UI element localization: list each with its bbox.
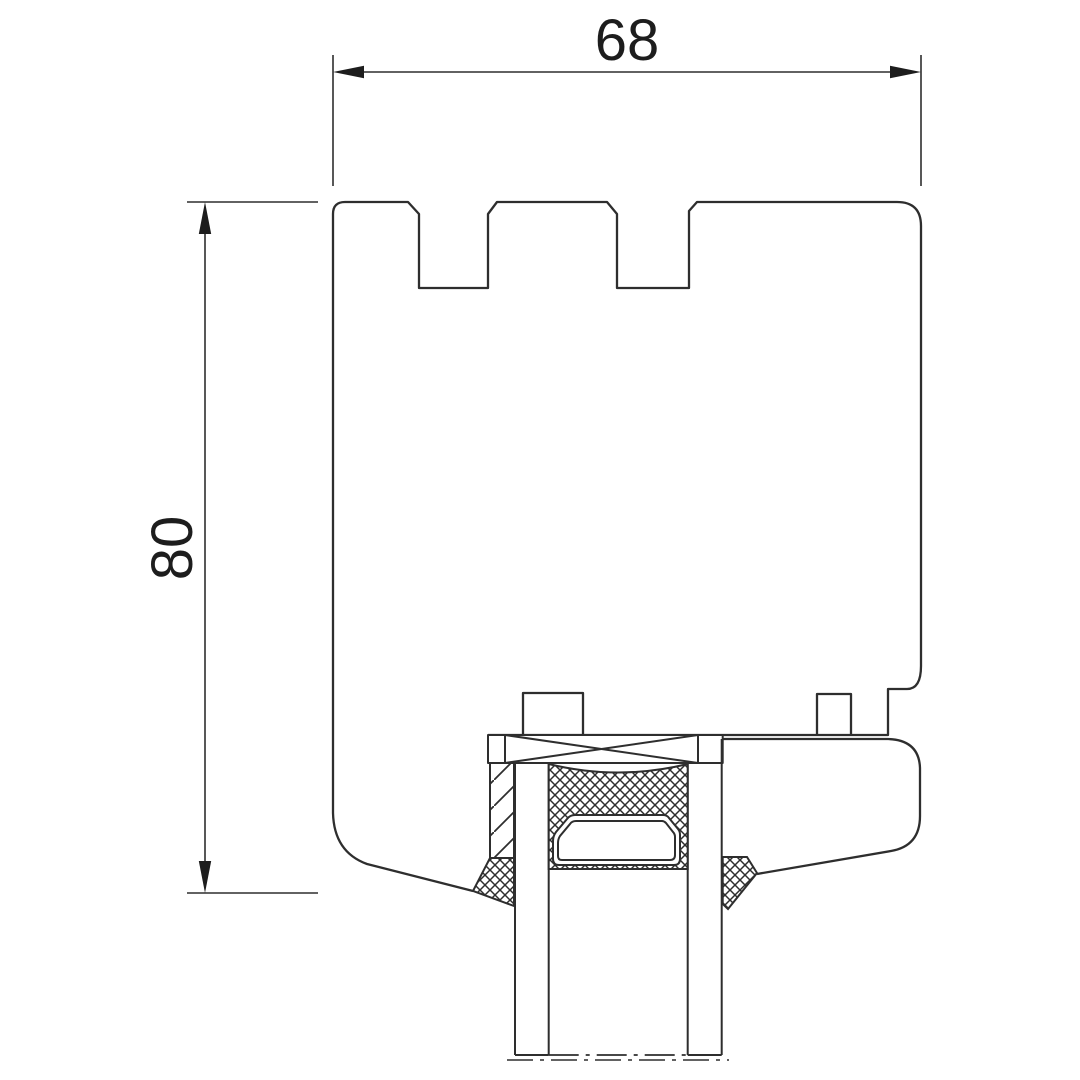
width-dimension-label: 68 [595,8,660,73]
arrowhead-right-icon [890,66,921,78]
sealant-wedge-right [723,857,757,909]
glazing-bead-outline [723,739,920,874]
rebate-upstand [490,763,514,858]
sealant-wedge-left [473,858,514,906]
glazing-rebate-band [488,735,723,763]
arrowhead-up-icon [199,202,211,234]
technical-drawing-page: 68 80 [0,0,1080,1080]
window-section-drawing: 68 80 [0,0,1080,1080]
groove-tongue-left [523,693,583,735]
edge-seal [549,764,688,869]
height-dimension-label: 80 [140,516,205,581]
dimension-width: 68 [333,8,921,186]
groove-tongue-right [817,694,851,735]
arrowhead-left-icon [333,66,364,78]
arrowhead-down-icon [199,861,211,893]
rebate-band-left [488,735,505,763]
dimension-height: 80 [140,202,318,893]
rebate-band-right [698,735,723,763]
rebate-upstand-section [490,763,514,858]
